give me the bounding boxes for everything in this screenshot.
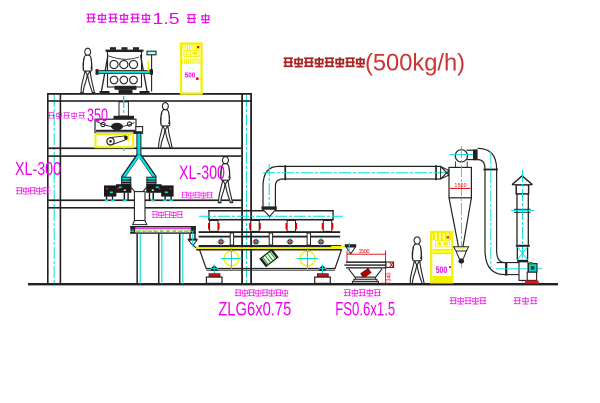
svg-text:XL-300: XL-300: [179, 163, 225, 184]
svg-text:FS0.6x1.5: FS0.6x1.5: [335, 300, 395, 321]
svg-text:1500: 1500: [455, 183, 467, 189]
svg-text:350: 350: [87, 105, 108, 126]
svg-text:(500kg/h): (500kg/h): [365, 50, 465, 77]
svg-text:XL-300: XL-300: [15, 159, 61, 179]
svg-text:1.5: 1.5: [153, 11, 180, 28]
svg-text:500: 500: [185, 71, 196, 80]
svg-text:ZLG6x0.75: ZLG6x0.75: [218, 300, 291, 321]
svg-text:1500: 1500: [359, 249, 370, 255]
svg-text:500: 500: [436, 265, 448, 276]
svg-text:340: 340: [387, 273, 393, 282]
